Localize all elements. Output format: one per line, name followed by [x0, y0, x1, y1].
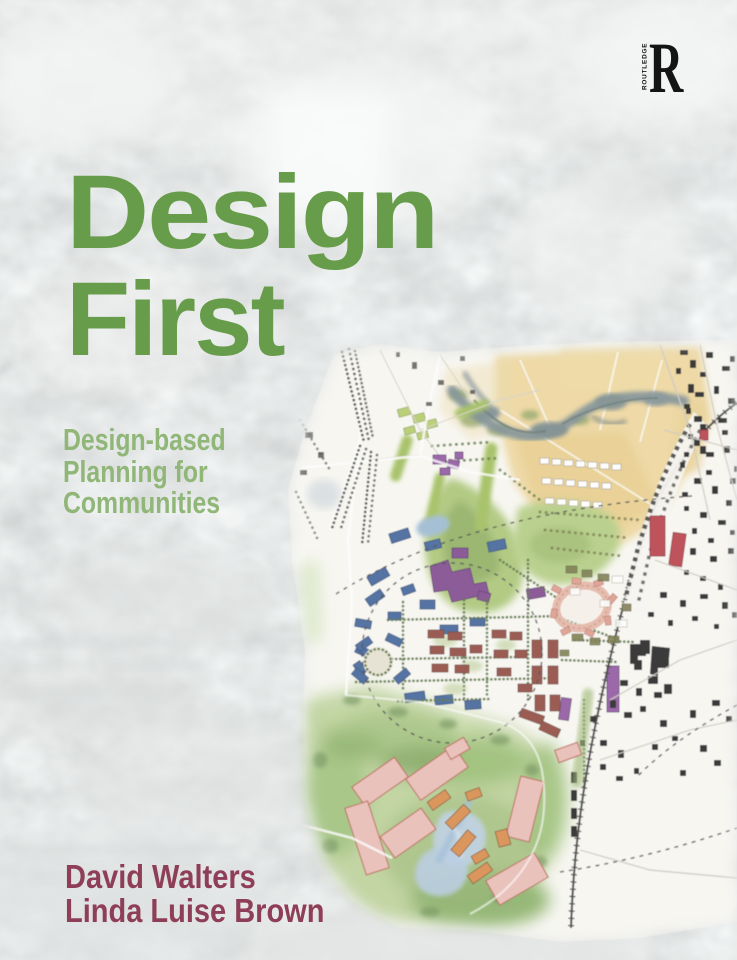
svg-text:R: R — [649, 29, 684, 108]
svg-text:ROUTLEDGE: ROUTLEDGE — [642, 43, 649, 90]
